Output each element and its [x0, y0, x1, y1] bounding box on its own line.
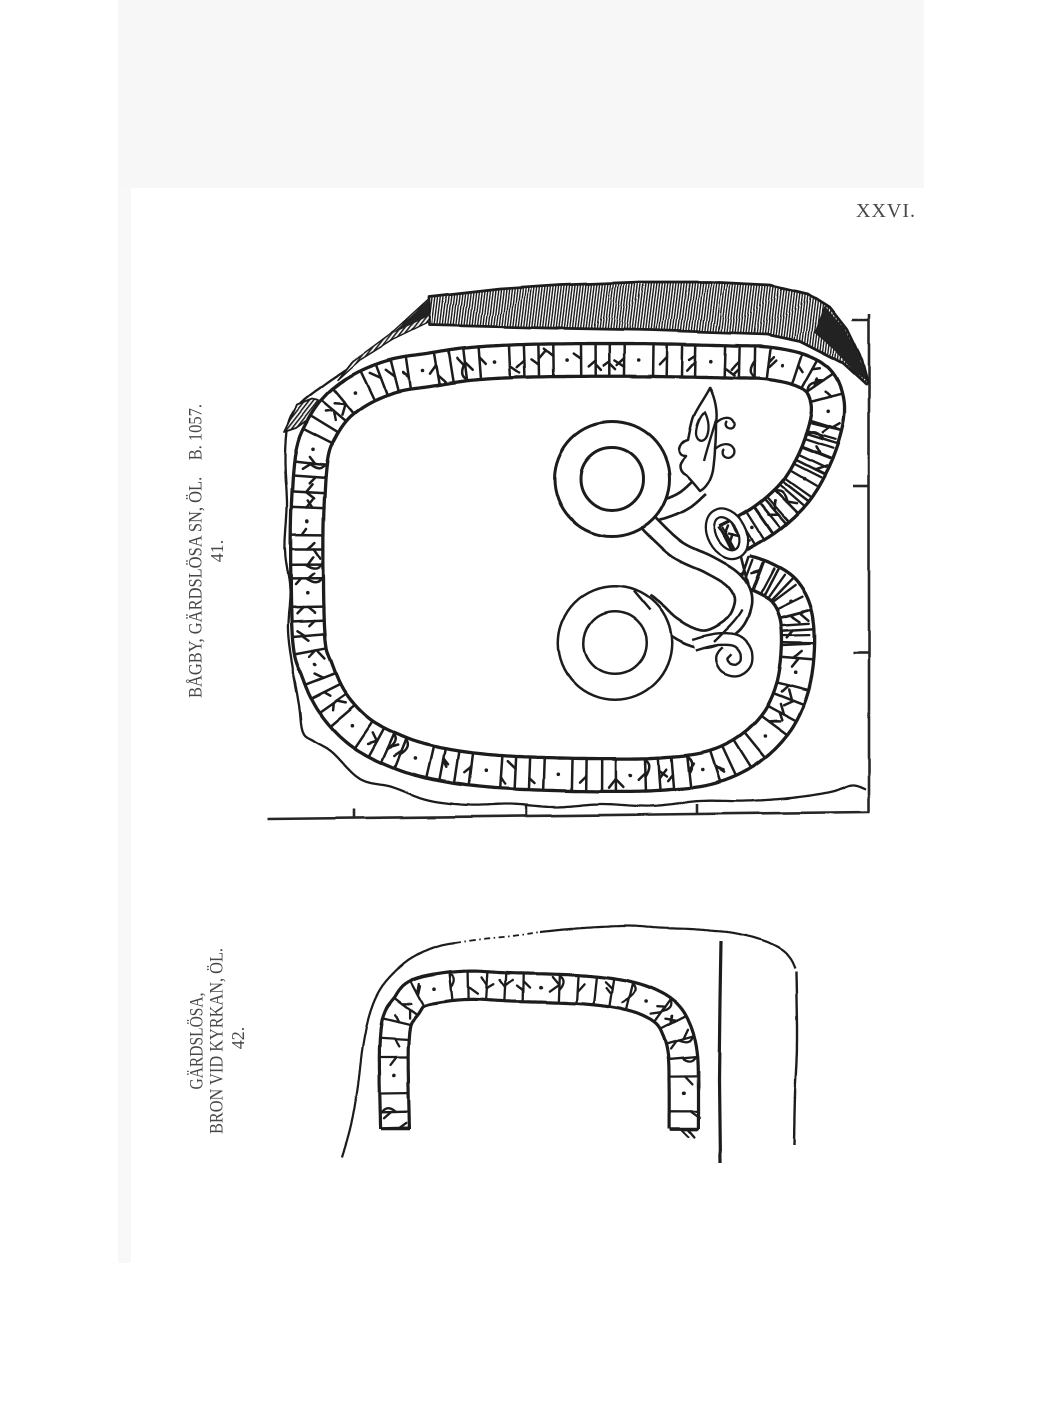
svg-text:BÅGBY, GÄRDSLÖSA SN, ÖL. B. 1: BÅGBY, GÄRDSLÖSA SN, ÖL. B. 1057.: [185, 404, 206, 698]
svg-text:GÄRDSLÖSA,: GÄRDSLÖSA,: [186, 993, 207, 1090]
svg-text:41.: 41.: [207, 540, 227, 563]
svg-text:BRON VID KYRKAN, ÖL.: BRON VID KYRKAN, ÖL.: [206, 948, 227, 1134]
svg-text:42.: 42.: [228, 1027, 248, 1050]
svg-text:XXVI.: XXVI.: [856, 200, 916, 222]
